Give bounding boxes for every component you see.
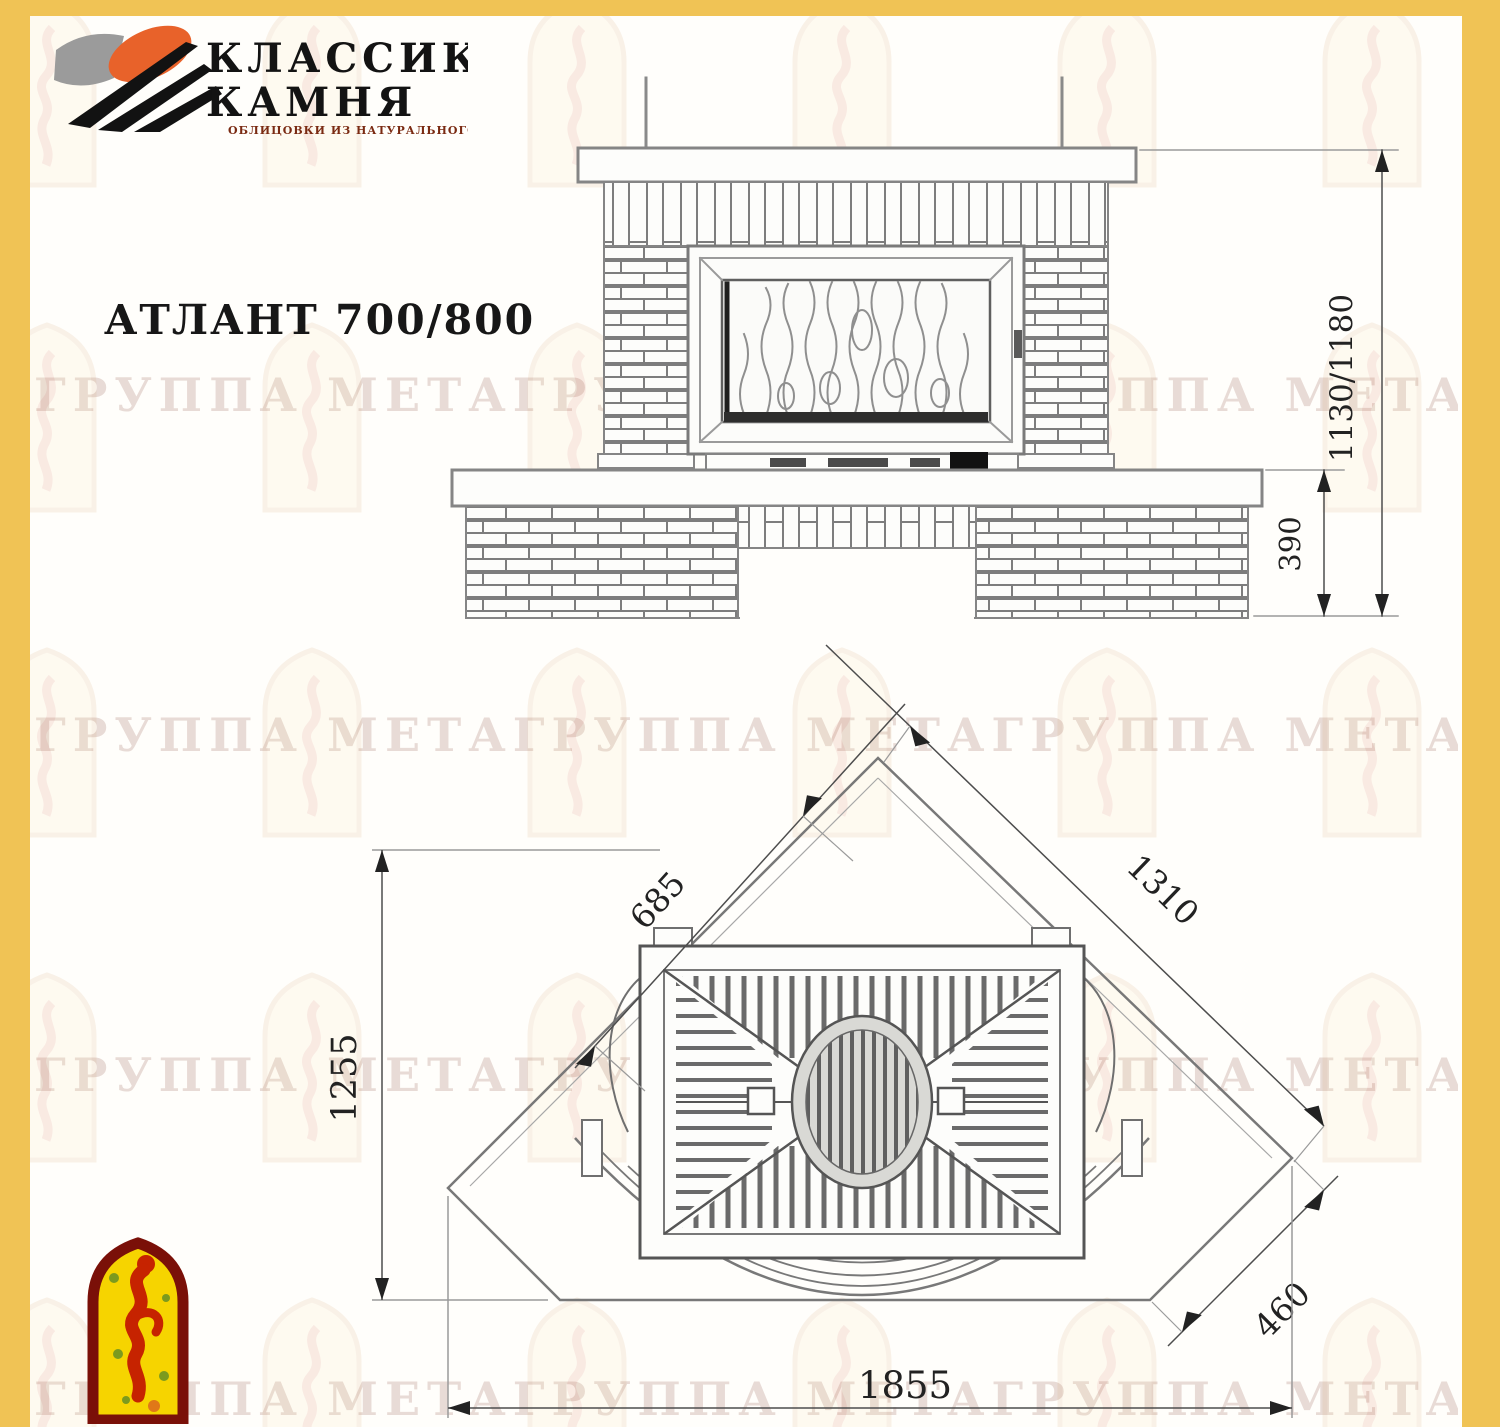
dim-label-total-height: 1130/1180 [1324, 294, 1360, 462]
company-logo: КЛАССИКА КАМНЯ ОБЛИЦОВКИ ИЗ НАТУРАЛЬНОГО… [38, 20, 468, 138]
page-border-right [1462, 0, 1500, 1427]
model-title: АТЛАНТ 700/800 [104, 296, 564, 344]
dim-label-left-face: 685 [622, 864, 693, 937]
dim-label-base-height: 390 [1273, 516, 1307, 571]
left-arc-post [582, 1120, 602, 1176]
left-pillar-foot [598, 454, 694, 468]
page-border-top [0, 0, 1500, 16]
fireplace-technical-drawing: 1130/1180 390 [0, 0, 1500, 1427]
dimension-corner-face: 460 [1152, 1160, 1338, 1346]
brand-emblem [86, 1236, 190, 1424]
dim-label-right-wall: 1310 [1119, 847, 1207, 933]
firebox-front [688, 246, 1024, 470]
logo-line2: КАМНЯ [206, 79, 417, 126]
left-brick-pillar [604, 246, 688, 454]
dim-label-corner-face: 460 [1246, 1274, 1318, 1346]
right-pillar-foot [1018, 454, 1114, 468]
base-pedestal [466, 506, 1248, 619]
ember-bar [724, 412, 988, 422]
hearth-shelf [452, 470, 1262, 506]
soldier-course-band [604, 182, 1108, 246]
page-border-left [0, 0, 30, 1427]
logo-line1: КЛАССИКА [206, 35, 468, 82]
right-arc-post [1122, 1120, 1142, 1176]
right-brick-pillar [1024, 246, 1108, 454]
dim-label-depth: 1255 [325, 1033, 365, 1122]
firebox-insert-plan [610, 928, 1115, 1258]
door-handle [1014, 330, 1022, 358]
mantel-shelf [578, 148, 1136, 182]
logo-subtitle: ОБЛИЦОВКИ ИЗ НАТУРАЛЬНОГО КАМНЯ [228, 124, 468, 137]
dim-label-total-width: 1855 [858, 1364, 952, 1407]
page: ГРУППА МЕТАГРУППА МЕТАГРУППА МЕТА ГРУППА… [0, 0, 1500, 1427]
